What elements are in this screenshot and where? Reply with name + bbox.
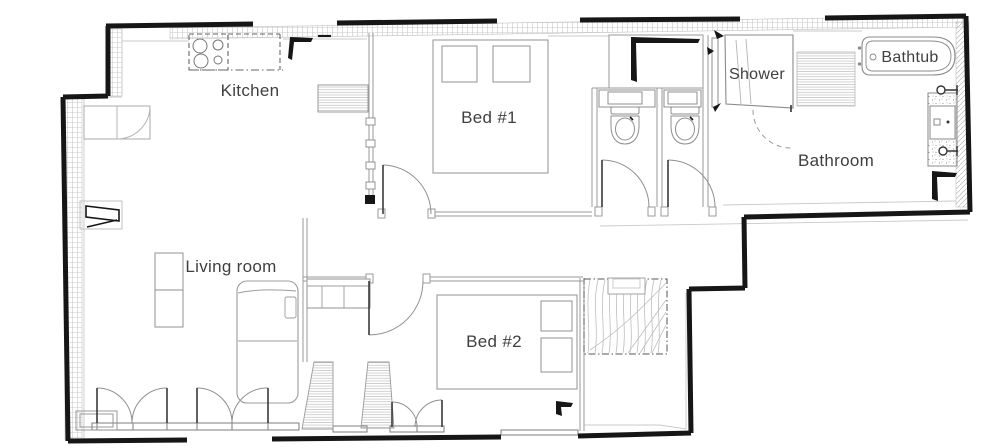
window-pier bbox=[302, 362, 333, 429]
sofa bbox=[237, 281, 298, 403]
pipe-clamps bbox=[366, 118, 375, 189]
living-east-wall bbox=[303, 218, 307, 362]
bath-mat bbox=[797, 52, 855, 106]
bed1-south-wall bbox=[435, 212, 592, 216]
kitchen-label: Kitchen bbox=[221, 81, 280, 100]
left-upper-wall-band bbox=[109, 29, 122, 96]
kitchen-area bbox=[189, 34, 375, 204]
tv-unit bbox=[86, 206, 119, 221]
tv-unit-edge bbox=[87, 220, 117, 227]
living-room-label: Living room bbox=[185, 257, 276, 276]
bed1-label: Bed #1 bbox=[461, 108, 517, 127]
side-table bbox=[155, 253, 183, 290]
pillow bbox=[442, 46, 477, 82]
bathroom-door-arc bbox=[753, 110, 791, 148]
wardrobe bbox=[307, 279, 370, 308]
side-table bbox=[155, 290, 183, 327]
window-pier bbox=[361, 362, 394, 428]
window-sill bbox=[501, 430, 578, 435]
vanity-sink bbox=[928, 85, 958, 166]
stair-landing bbox=[608, 278, 645, 294]
bathroom-label: Bathroom bbox=[798, 151, 874, 170]
wall-end-cap bbox=[365, 195, 375, 204]
toilet-2 bbox=[671, 107, 699, 144]
bed2-east-wall bbox=[580, 278, 584, 431]
stairs bbox=[584, 278, 667, 354]
toilet-1 bbox=[611, 107, 639, 144]
pillow bbox=[541, 301, 572, 331]
pillow bbox=[493, 46, 530, 82]
bed2-label: Bed #2 bbox=[466, 332, 522, 351]
floor-plan: Kitchen Bed #1 Shower Bathtub Bathroom L… bbox=[0, 0, 1000, 448]
bathtub-label: Bathtub bbox=[881, 49, 938, 66]
closet-door-arc bbox=[117, 106, 150, 139]
pillow bbox=[541, 338, 572, 372]
wc-rooms bbox=[599, 90, 701, 144]
bed-1 bbox=[433, 40, 548, 173]
shower-glass bbox=[712, 38, 718, 107]
radiator bbox=[318, 85, 368, 112]
shower-label: Shower bbox=[729, 66, 785, 83]
entry-area bbox=[80, 106, 150, 229]
floor-plan-drawing: Kitchen Bed #1 Shower Bathtub Bathroom L… bbox=[0, 0, 1000, 448]
stove-burners bbox=[193, 39, 223, 68]
kitchen-counter bbox=[228, 34, 280, 70]
column-brackets bbox=[288, 37, 957, 416]
